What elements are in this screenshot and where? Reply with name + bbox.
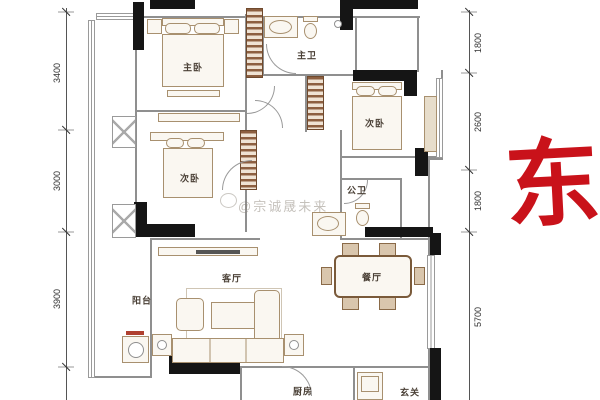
wall-segment — [417, 16, 419, 72]
room-label-balcony: 阳台 — [132, 294, 152, 307]
sofa — [172, 338, 284, 363]
room-label-dining-room: 餐厅 — [362, 271, 382, 284]
room-label-entry: 玄关 — [400, 386, 420, 399]
pillow — [166, 138, 184, 148]
window — [96, 13, 136, 20]
pillow — [187, 138, 205, 148]
room-label-living-room: 客厅 — [222, 272, 242, 285]
coffee-table — [211, 302, 255, 329]
toilet-bowl — [356, 210, 369, 226]
room-label-public-bath: 公卫 — [347, 184, 367, 197]
sink-basin — [317, 216, 339, 231]
floorplan-canvas: 3400 3000 3900 1800 2600 1800 5700 — [0, 0, 600, 400]
ac-unit — [112, 204, 136, 238]
window-sill — [424, 96, 437, 152]
wall-segment — [88, 376, 152, 378]
washing-machine-drum — [128, 342, 144, 358]
door-arc-master-bath — [266, 44, 296, 74]
dining-chair — [342, 297, 359, 310]
wardrobe — [307, 76, 324, 130]
side-table-lamp — [289, 340, 299, 350]
side-table-lamp — [157, 340, 167, 350]
washer-panel — [126, 331, 144, 335]
pillow — [378, 86, 397, 96]
wall-black — [404, 70, 417, 96]
dining-chair — [321, 267, 332, 285]
wall-black — [134, 224, 195, 237]
door-arc-bedroom-right — [255, 100, 283, 128]
wall-segment — [340, 238, 432, 240]
door-arc-bedroom-left — [222, 160, 252, 190]
pillow — [165, 23, 191, 34]
nightstand — [147, 19, 162, 34]
room-label-master-bath: 主卫 — [297, 49, 317, 62]
pillow — [194, 23, 220, 34]
watermark-text: @宗诚晟未来 — [238, 196, 328, 215]
toilet-tank — [355, 203, 370, 209]
wall-segment — [240, 366, 242, 400]
wall-segment — [240, 366, 430, 368]
sink-basin — [269, 20, 292, 34]
shower-head-icon — [334, 20, 342, 28]
wall-segment — [150, 238, 260, 240]
wall-segment — [135, 110, 247, 112]
watermark-logo-icon — [220, 193, 237, 208]
bed-bench — [167, 90, 220, 97]
dining-chair — [414, 267, 425, 285]
dimension-label-right-2: 2600 — [473, 112, 483, 132]
wall-segment — [353, 366, 355, 400]
wall-black — [150, 0, 195, 9]
room-label-master-bedroom: 主卧 — [183, 61, 203, 74]
room-label-kitchen: 厨房 — [293, 385, 313, 398]
wall-black — [415, 148, 428, 176]
chaise — [254, 290, 280, 344]
dimension-label-right-3: 1800 — [473, 191, 483, 211]
wardrobe — [246, 8, 263, 78]
pillow — [356, 86, 375, 96]
room-label-bedroom-left: 次卧 — [180, 172, 200, 185]
toilet-bowl — [304, 23, 317, 39]
dimension-label-right-1: 1800 — [473, 33, 483, 53]
compass-east-label: 东 — [503, 136, 600, 236]
fridge-inner — [361, 376, 379, 392]
room-label-bedroom-right: 次卧 — [365, 117, 385, 130]
dimension-label-right-4: 5700 — [473, 307, 483, 327]
wall-black — [365, 227, 433, 237]
wall-segment — [150, 240, 152, 378]
dimension-label-left-2: 3000 — [52, 171, 62, 191]
window — [427, 255, 435, 349]
dimension-line-left — [66, 8, 67, 400]
dining-chair — [379, 297, 396, 310]
wall-black — [430, 348, 441, 400]
ac-unit — [112, 116, 136, 148]
window — [436, 78, 443, 158]
wall-segment — [355, 16, 357, 76]
wall-black — [133, 2, 144, 50]
tv — [196, 250, 240, 254]
dimension-line-right — [469, 10, 470, 400]
wall-black — [352, 0, 418, 9]
dresser — [158, 113, 240, 122]
nightstand — [224, 19, 239, 34]
armchair — [176, 298, 204, 331]
dimension-label-left-3: 3900 — [52, 289, 62, 309]
window — [88, 20, 95, 378]
toilet-tank — [303, 16, 318, 22]
dimension-label-left-1: 3400 — [52, 63, 62, 83]
